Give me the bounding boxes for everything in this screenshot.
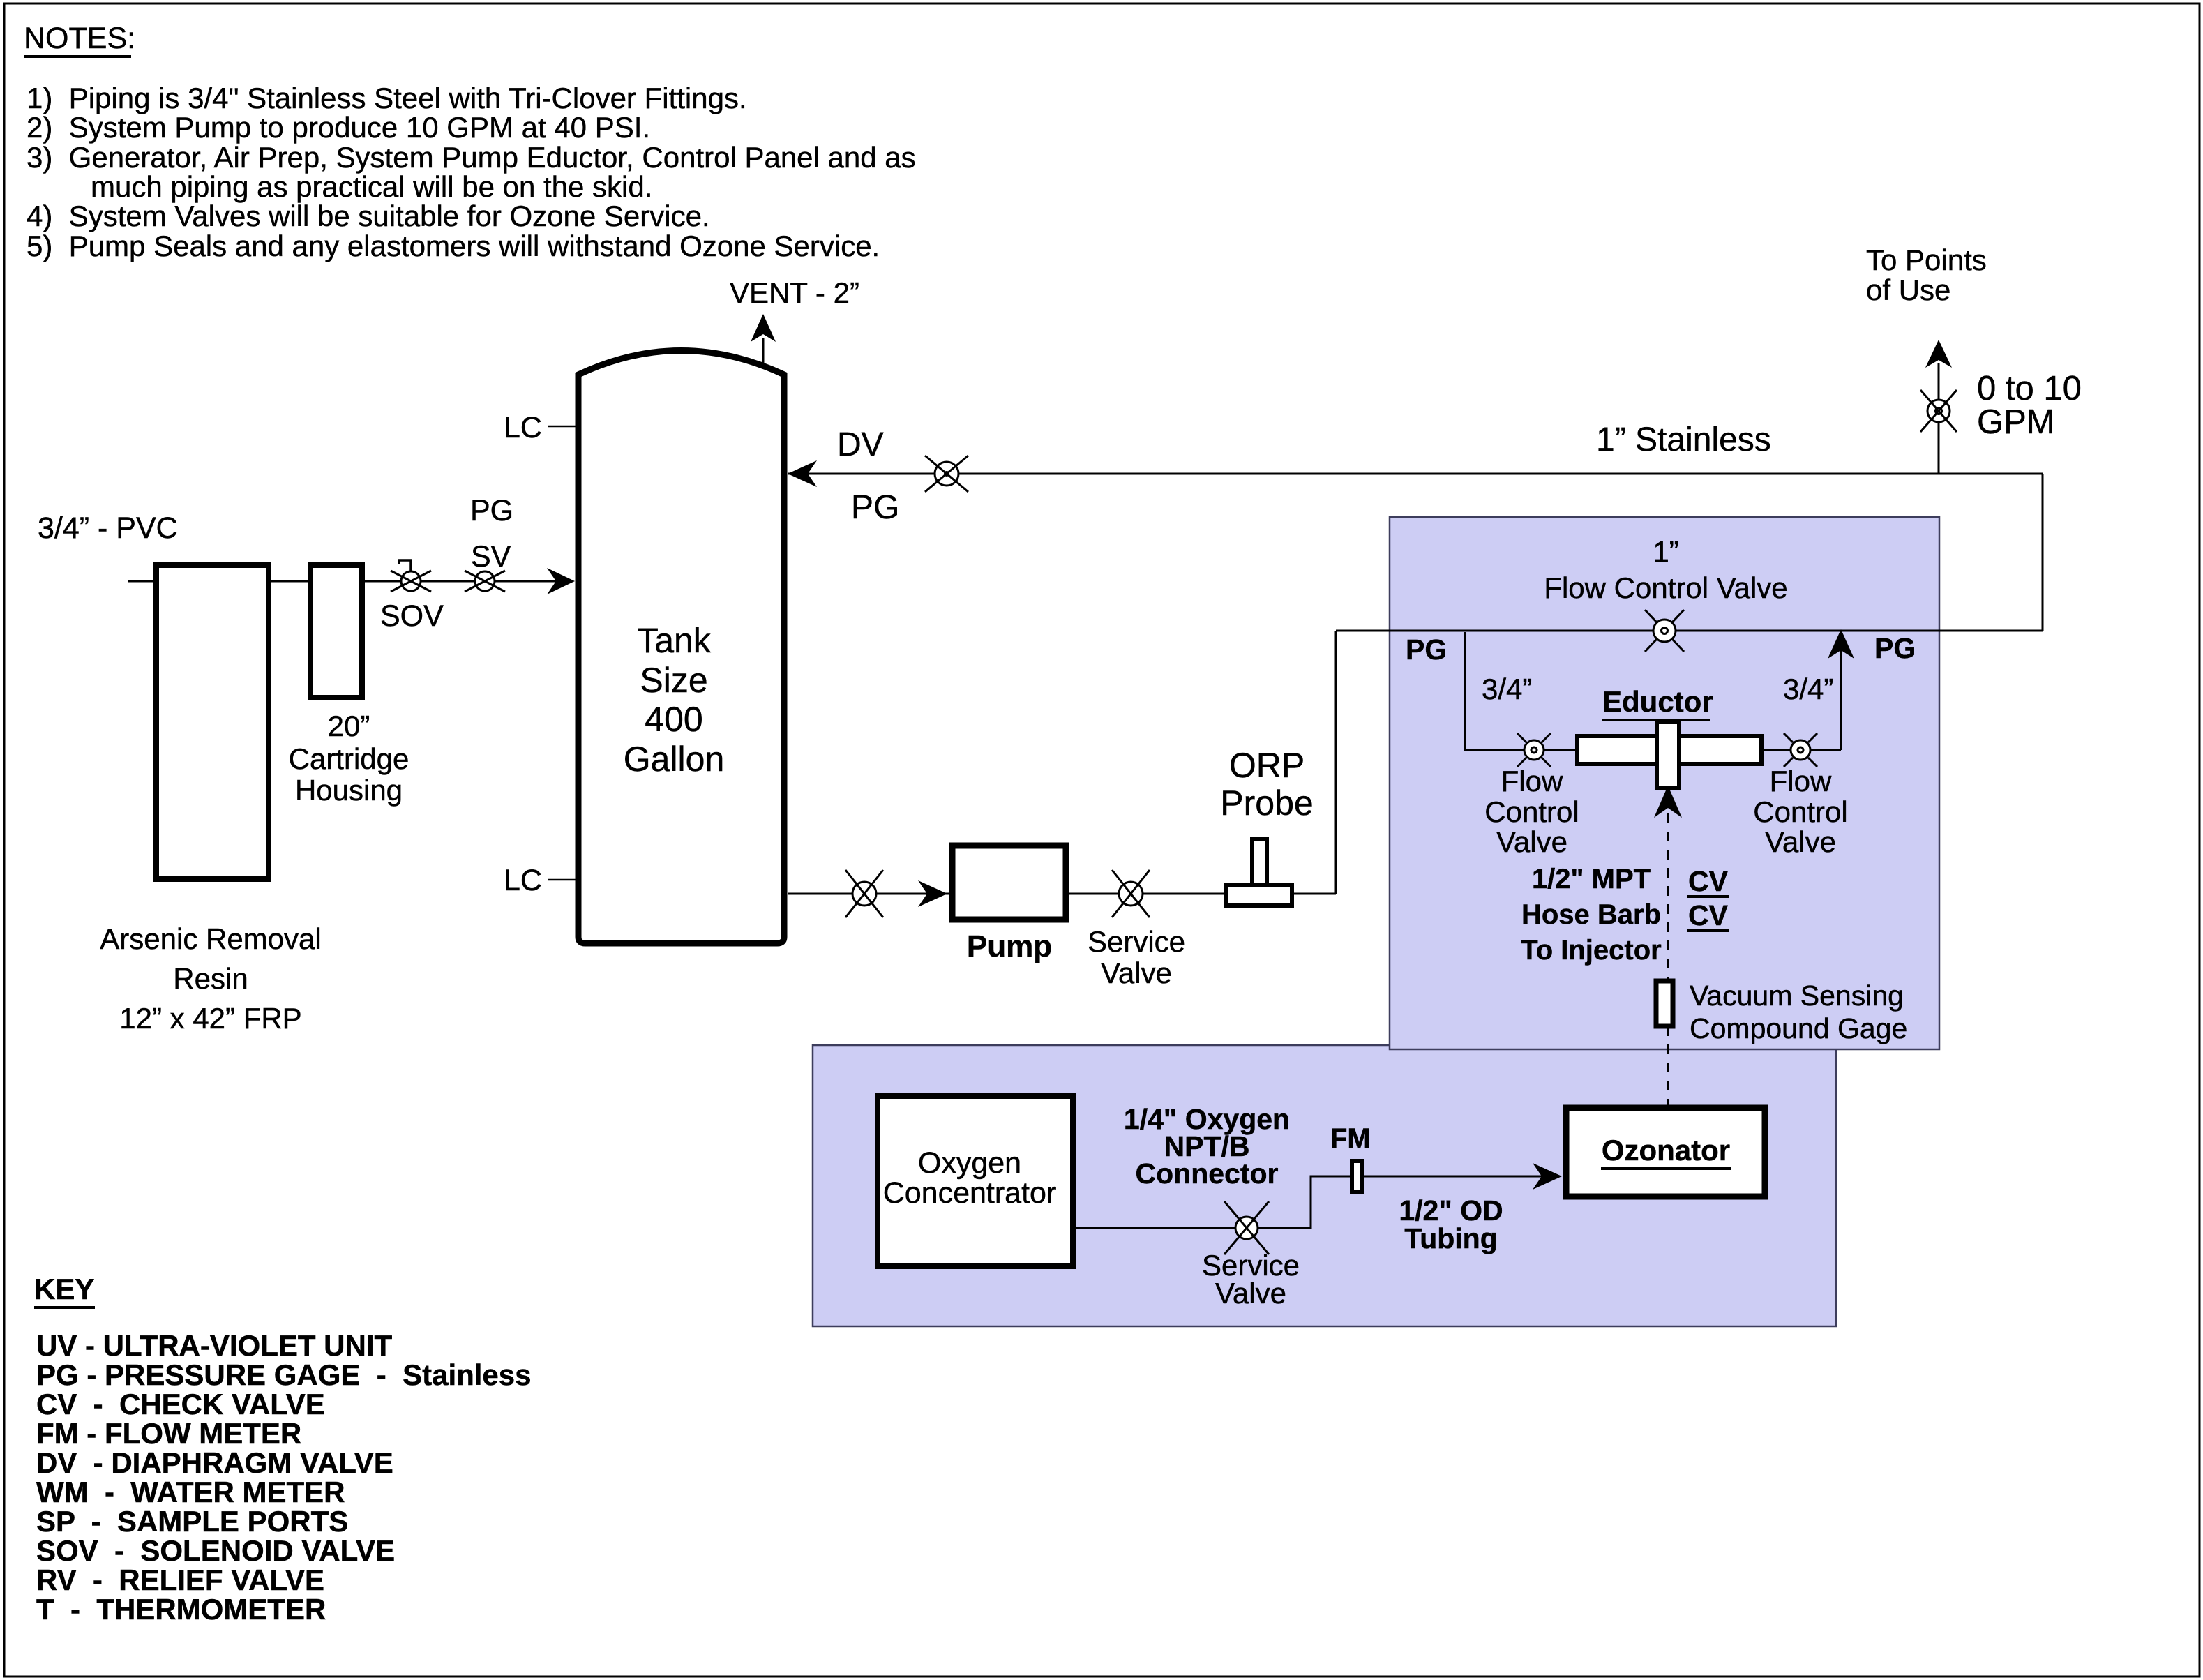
- svg-text:Arsenic Removal: Arsenic Removal: [100, 922, 321, 955]
- svg-text:Valve: Valve: [1215, 1277, 1286, 1310]
- svg-text:ORP: ORP: [1229, 746, 1304, 785]
- svg-text:1” Stainless: 1” Stainless: [1596, 421, 1771, 458]
- svg-text:20”: 20”: [328, 710, 370, 742]
- svg-text:Gallon: Gallon: [624, 740, 725, 779]
- svg-text:SOV: SOV: [380, 599, 444, 633]
- svg-text:Valve: Valve: [1765, 825, 1836, 858]
- svg-text:SP - SAMPLE PORTS: SP - SAMPLE PORTS: [36, 1505, 348, 1538]
- svg-text:LC: LC: [504, 411, 542, 444]
- svg-text:Tubing: Tubing: [1404, 1222, 1498, 1254]
- svg-text:3/4”: 3/4”: [1783, 673, 1833, 705]
- svg-text:SV: SV: [471, 540, 511, 573]
- svg-text:PG: PG: [1406, 633, 1447, 666]
- svg-text:Flow: Flow: [1770, 765, 1832, 797]
- svg-text:4) System Valves will be suit: 4) System Valves will be suitable for Oz…: [27, 200, 710, 232]
- svg-text:PG: PG: [1874, 632, 1916, 664]
- svg-text:WM - WATER METER: WM - WATER METER: [36, 1476, 345, 1508]
- svg-text:Flow: Flow: [1501, 765, 1563, 797]
- svg-text:Pump: Pump: [967, 929, 1052, 963]
- svg-text:Service: Service: [1088, 925, 1185, 958]
- svg-text:DV - DIAPHRAGM VALVE: DV - DIAPHRAGM VALVE: [36, 1446, 393, 1479]
- svg-text:400: 400: [645, 700, 702, 739]
- svg-text:CV: CV: [1688, 899, 1729, 931]
- svg-text:1/2" MPT: 1/2" MPT: [1532, 864, 1651, 894]
- svg-text:PG: PG: [851, 489, 899, 526]
- svg-text:of Use: of Use: [1866, 273, 1950, 306]
- svg-text:KEY: KEY: [34, 1273, 94, 1305]
- svg-text:PG - PRESSURE GAGE - Stainle: PG - PRESSURE GAGE - Stainless: [36, 1358, 532, 1391]
- svg-text:0 to 10: 0 to 10: [1977, 370, 2082, 407]
- svg-text:FM: FM: [1330, 1123, 1371, 1154]
- svg-text:Cartridge: Cartridge: [289, 742, 409, 775]
- svg-text:Ozonator: Ozonator: [1602, 1134, 1730, 1167]
- svg-text:Tank: Tank: [637, 621, 712, 660]
- svg-text:CV - CHECK VALVE: CV - CHECK VALVE: [36, 1388, 325, 1420]
- svg-text:Flow Control Valve: Flow Control Valve: [1544, 571, 1787, 604]
- svg-text:LC: LC: [504, 864, 542, 897]
- svg-text:12” x 42” FRP: 12” x 42” FRP: [119, 1002, 301, 1035]
- svg-text:2) System Pump to produce 10: 2) System Pump to produce 10 GPM at 40 P…: [27, 111, 650, 144]
- svg-text:DV: DV: [837, 426, 884, 463]
- svg-text:1) Piping is 3/4" Stainless S: 1) Piping is 3/4" Stainless Steel with T…: [27, 82, 747, 114]
- svg-text:SOV - SOLENOID VALVE: SOV - SOLENOID VALVE: [36, 1534, 395, 1567]
- svg-text:Size: Size: [640, 661, 707, 700]
- svg-text:Oxygen: Oxygen: [918, 1146, 1021, 1180]
- svg-text:3/4”: 3/4”: [1482, 673, 1532, 705]
- svg-text:1”: 1”: [1653, 535, 1678, 568]
- svg-text:VENT - 2”: VENT - 2”: [730, 276, 859, 309]
- svg-text:Concentrator: Concentrator: [883, 1176, 1057, 1210]
- svg-text:PG: PG: [470, 494, 513, 527]
- svg-text:Probe: Probe: [1220, 783, 1313, 823]
- svg-text:Valve: Valve: [1101, 957, 1172, 989]
- svg-text:5) Pump Seals and any elastom: 5) Pump Seals and any elastomers will wi…: [27, 230, 880, 262]
- svg-text:3) Generator, Air Prep, Syste: 3) Generator, Air Prep, System Pump Educ…: [27, 141, 916, 174]
- svg-text:3/4” - PVC: 3/4” - PVC: [38, 511, 178, 545]
- svg-text:GPM: GPM: [1977, 403, 2055, 441]
- svg-text:NOTES:: NOTES:: [24, 22, 135, 55]
- svg-text:much piping as practical will: much piping as practical will be on the …: [91, 170, 652, 203]
- svg-text:Connector: Connector: [1136, 1157, 1279, 1190]
- svg-text:To Injector: To Injector: [1521, 935, 1661, 966]
- svg-text:T - THERMOMETER: T - THERMOMETER: [36, 1593, 326, 1626]
- svg-text:Resin: Resin: [173, 962, 248, 995]
- svg-text:Control: Control: [1484, 795, 1579, 828]
- svg-text:UV - ULTRA-VIOLET UNIT: UV - ULTRA-VIOLET UNIT: [36, 1329, 393, 1362]
- svg-text:Eductor: Eductor: [1602, 685, 1713, 718]
- svg-text:Vacuum Sensing: Vacuum Sensing: [1690, 980, 1904, 1012]
- svg-text:Hose Barb: Hose Barb: [1521, 899, 1661, 930]
- svg-text:Compound Gage: Compound Gage: [1690, 1012, 1907, 1044]
- svg-text:RV - RELIEF VALVE: RV - RELIEF VALVE: [36, 1563, 324, 1596]
- svg-text:FM - FLOW METER: FM - FLOW METER: [36, 1417, 301, 1450]
- svg-text:Valve: Valve: [1496, 825, 1567, 858]
- svg-text:CV: CV: [1688, 865, 1729, 897]
- svg-text:Housing: Housing: [295, 774, 403, 807]
- svg-text:To Points: To Points: [1866, 243, 1987, 276]
- svg-text:Control: Control: [1753, 795, 1847, 828]
